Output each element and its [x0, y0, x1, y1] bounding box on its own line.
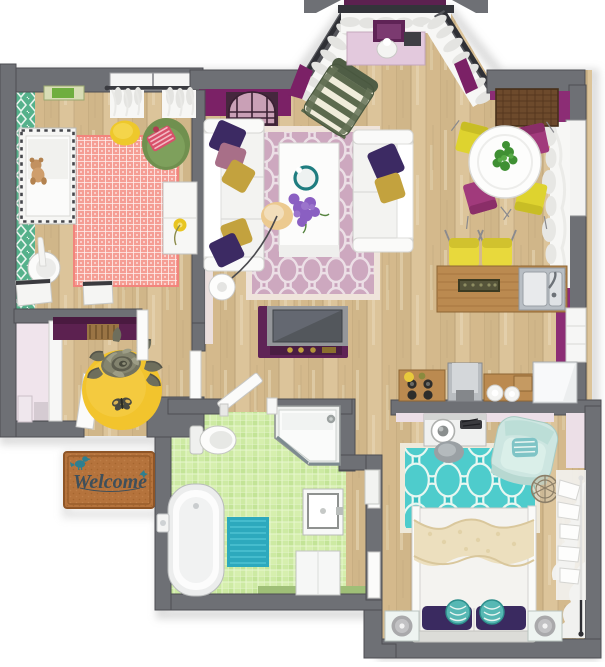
- svg-text:Welcome: Welcome: [73, 471, 147, 493]
